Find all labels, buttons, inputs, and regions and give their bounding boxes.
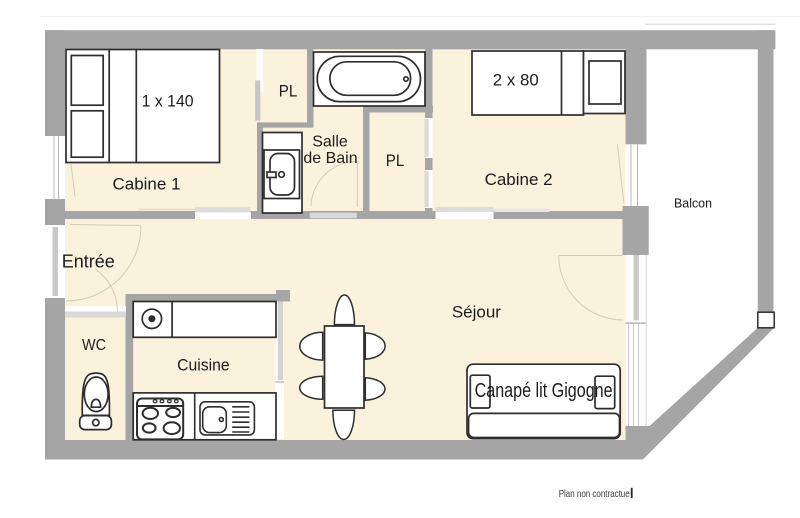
svg-text:1 x 140: 1 x 140: [142, 92, 194, 111]
svg-text:Entrée: Entrée: [62, 252, 115, 272]
svg-text:2 x 80: 2 x 80: [493, 71, 539, 90]
svg-text:PL: PL: [386, 151, 405, 170]
svg-text:WC: WC: [82, 337, 106, 354]
svg-text:Cabine 2: Cabine 2: [485, 170, 553, 189]
svg-text:Cuisine: Cuisine: [177, 356, 230, 375]
svg-text:Salle: Salle: [312, 134, 348, 151]
svg-text:Séjour: Séjour: [452, 303, 501, 322]
svg-text:Canapé lit Gigogne: Canapé lit Gigogne: [475, 380, 613, 402]
svg-text:Cabine 1: Cabine 1: [112, 175, 180, 194]
svg-text:Plan non contractue: Plan non contractue: [559, 488, 630, 500]
svg-text:de Bain: de Bain: [303, 150, 357, 167]
svg-text:PL: PL: [279, 82, 298, 101]
svg-text:Balcon: Balcon: [674, 197, 712, 211]
